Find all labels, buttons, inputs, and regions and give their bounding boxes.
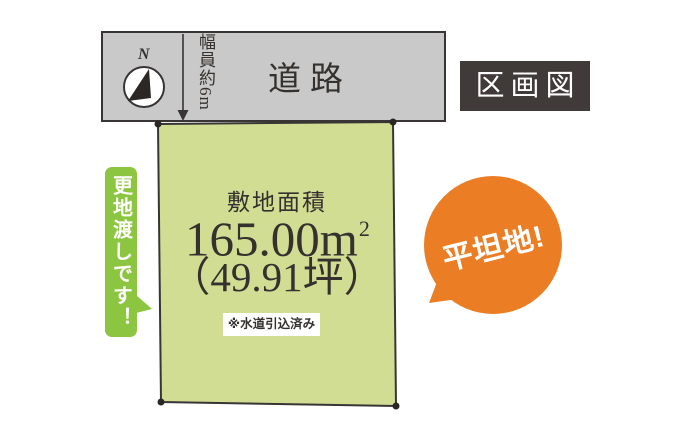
ribbon-tail-icon [136,295,152,313]
figure-title-badge: 区画図 [460,61,590,111]
plot-corner-dot [393,403,400,410]
water-supply-note: ※水道引込済み [223,313,320,336]
site-area-tsubo: （49.91坪） [158,254,396,300]
road-width-label: 幅員約6m [193,33,218,125]
plot-corner-dot [158,399,165,406]
vacant-land-ribbon-label: 更地渡しです！ [105,167,137,337]
plot-corner-dot [155,121,162,128]
lot-plan-figure: 道路 幅員約6m N 区画図 敷地面積 165.00m2 （49.91坪） ※水… [0,0,680,440]
plot-corner-dot [390,119,397,126]
site-area-exponent: 2 [359,216,370,241]
road-label: 道路 [268,62,378,98]
compass-north-label: N [138,46,150,64]
